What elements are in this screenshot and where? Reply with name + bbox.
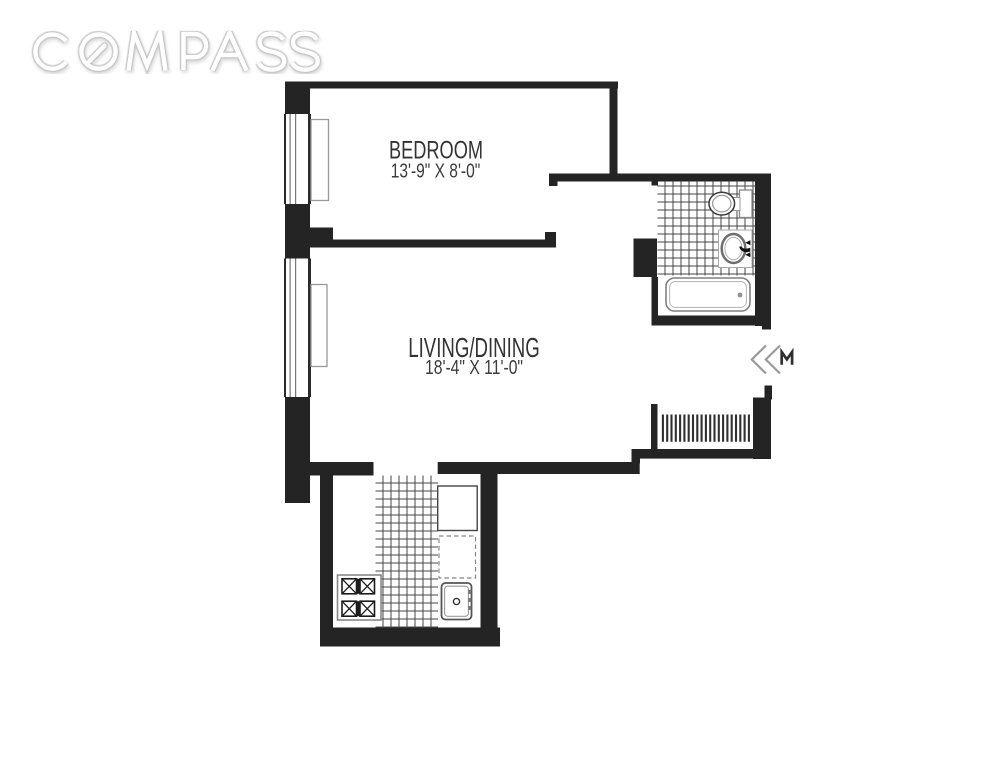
svg-text:13'-9" X 8'-0": 13'-9" X 8'-0" [391,160,481,182]
svg-text:18'-4" X 11'-0": 18'-4" X 11'-0" [425,357,523,379]
